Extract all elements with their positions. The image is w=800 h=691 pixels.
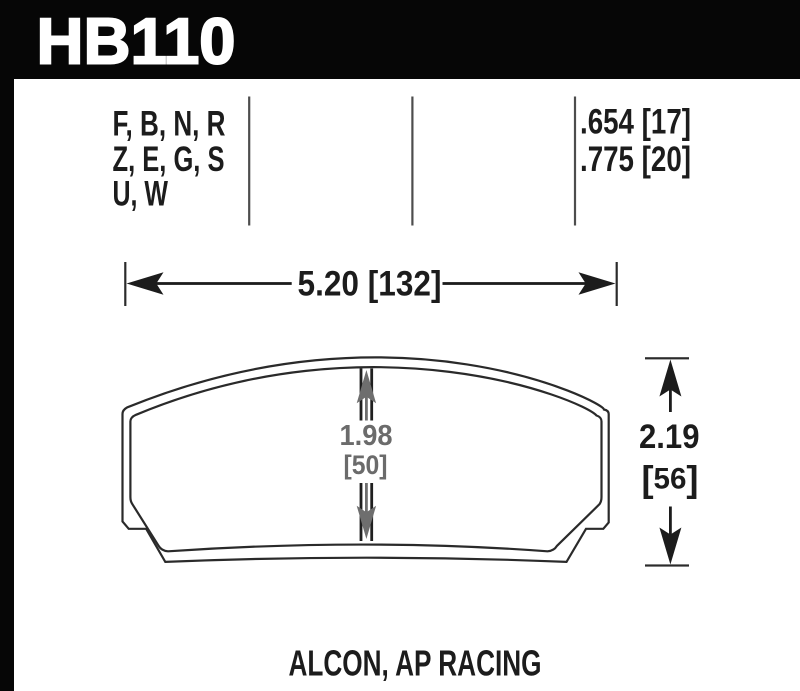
svg-text:.775 [20]: .775 [20] (580, 139, 691, 179)
svg-text:F, B, N, R: F, B, N, R (113, 103, 226, 143)
svg-text:5.20 [132]: 5.20 [132] (298, 264, 442, 303)
svg-text:1.98: 1.98 (340, 420, 393, 452)
svg-text:U, W: U, W (113, 174, 169, 214)
svg-text:.654 [17]: .654 [17] (580, 102, 691, 142)
svg-text:[56]: [56] (642, 458, 699, 499)
svg-text:2.19: 2.19 (639, 418, 700, 456)
svg-text:ALCON, AP RACING: ALCON, AP RACING (289, 642, 542, 683)
svg-text:HB110: HB110 (37, 4, 236, 77)
svg-text:[50]: [50] (344, 450, 388, 480)
